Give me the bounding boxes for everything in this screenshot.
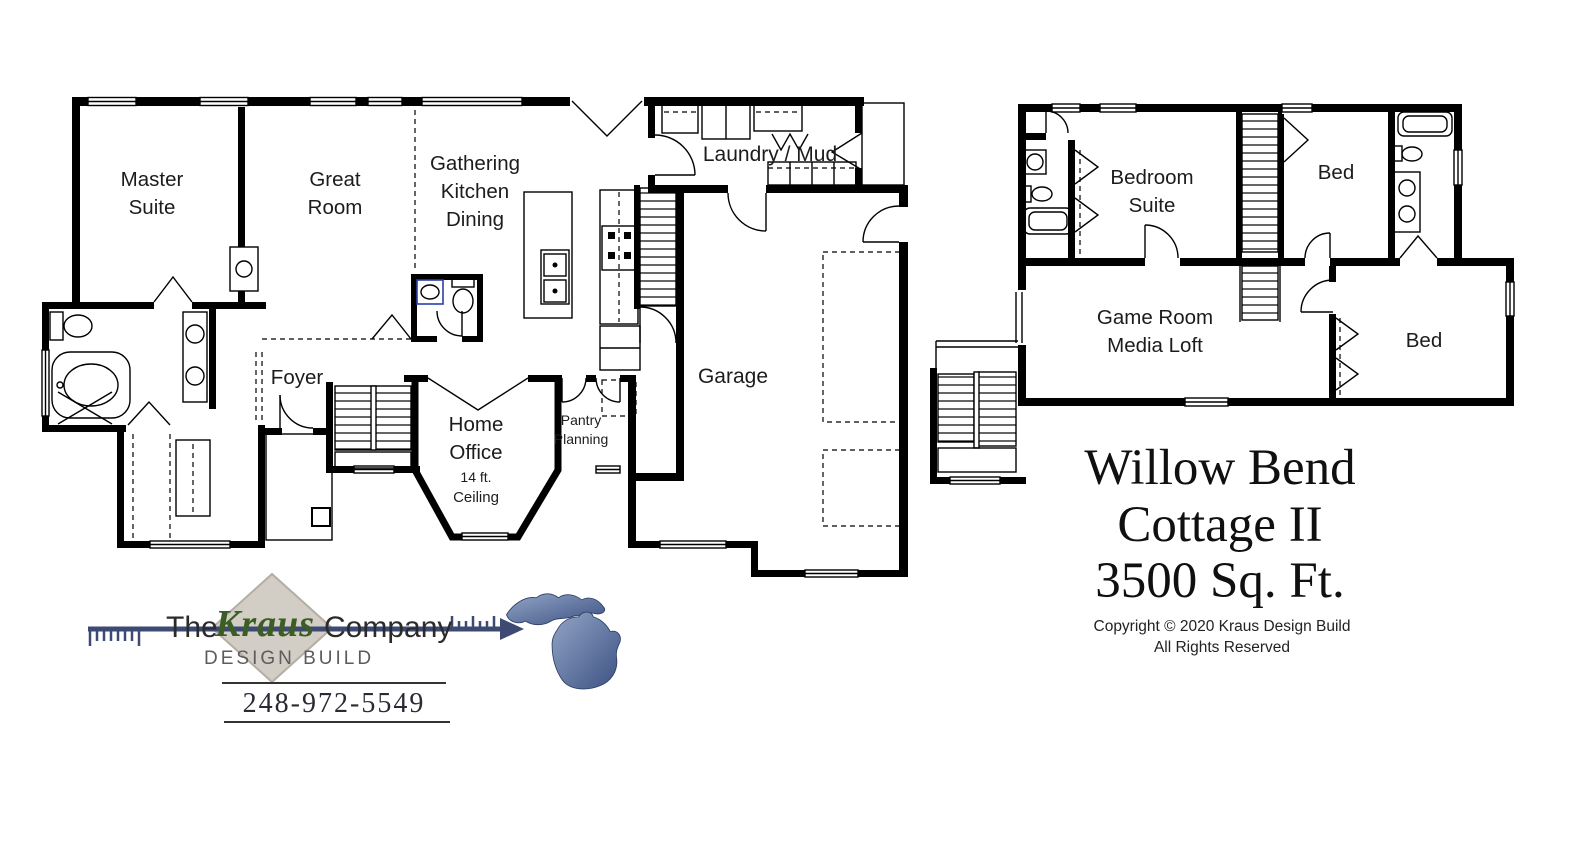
label-foyer: Foyer	[271, 366, 324, 389]
plan-title-line1: Willow Bend	[1084, 440, 1355, 496]
svg-text:Media Loft: Media Loft	[1107, 334, 1203, 357]
svg-text:Dining: Dining	[446, 208, 504, 231]
label-bedroom-suite: Bedroom	[1110, 166, 1193, 189]
phone-number: 248-972-5549	[243, 688, 426, 719]
floor-plan-sheet: Master Suite Great Room Gathering Kitche…	[0, 0, 1576, 841]
svg-text:Suite: Suite	[129, 196, 176, 219]
svg-text:Suite: Suite	[1129, 194, 1176, 217]
rear-stairs	[938, 372, 1016, 472]
logo-tagline: DESIGN BUILD	[204, 648, 374, 669]
upper-floor-walls	[930, 104, 1514, 484]
label-gathering-kitchen: Gathering	[430, 152, 520, 175]
main-floor-plan: Master Suite Great Room Gathering Kitche…	[40, 95, 908, 579]
logo-block: The Kraus Company DESIGN BUILD 248-972-5…	[88, 574, 620, 722]
ruler-ticks-left	[90, 629, 139, 646]
plan-title-line3: 3500 Sq. Ft.	[1095, 553, 1344, 609]
front-porch	[266, 434, 332, 540]
logo-prefix: The	[166, 611, 218, 644]
copyright-line2: All Rights Reserved	[1154, 639, 1290, 656]
label-game-room: Game Room	[1097, 306, 1213, 329]
svg-text:Kitchen: Kitchen	[441, 180, 509, 203]
plan-drawing: Master Suite Great Room Gathering Kitche…	[0, 0, 1576, 841]
logo-suffix: Company	[324, 611, 452, 644]
label-bed-rear: Bed	[1406, 329, 1442, 352]
rear-bed-closet	[1336, 318, 1358, 396]
svg-text:Ceiling: Ceiling	[453, 489, 499, 506]
svg-text:Planning: Planning	[554, 431, 609, 447]
copyright-line1: Copyright © 2020 Kraus Design Build	[1094, 618, 1351, 635]
plan-title-line2: Cottage II	[1117, 497, 1322, 553]
label-laundry-mud: Laundry / Mud	[703, 143, 837, 166]
master-closet	[133, 434, 210, 538]
label-garage: Garage	[698, 365, 768, 388]
upper-bath-left-fixtures	[1022, 150, 1098, 256]
label-office-ceiling-note: 14 ft.	[460, 469, 491, 485]
front-stairs	[335, 386, 411, 468]
label-great-room: Great	[309, 168, 361, 191]
title-block: Willow Bend Cottage II 3500 Sq. Ft. Copy…	[1084, 440, 1355, 656]
back-stairs	[640, 188, 676, 306]
ruler-ticks-right	[452, 616, 494, 629]
upper-bath-right-fixtures	[1394, 112, 1452, 232]
garage-stalls	[823, 252, 900, 526]
svg-text:Room: Room	[308, 196, 363, 219]
label-home-office: Home	[449, 413, 504, 436]
upper-floor-plan: Bedroom Suite Bed Game Room Media Loft B…	[930, 102, 1516, 486]
central-stairs	[1240, 114, 1280, 322]
michigan-state-icon	[506, 594, 620, 689]
fireplace	[230, 247, 258, 291]
label-master-suite: Master	[121, 168, 184, 191]
powder-room-fixtures	[417, 278, 474, 313]
label-pantry-planning: Pantry	[561, 412, 601, 428]
svg-text:Office: Office	[449, 441, 502, 464]
label-bed-front: Bed	[1318, 161, 1354, 184]
kitchen-island	[524, 192, 572, 318]
logo-brand: Kraus	[214, 603, 315, 645]
master-bath-fixtures	[50, 312, 207, 424]
loft-railing	[936, 292, 1022, 368]
upper-floor-windows	[950, 102, 1516, 486]
